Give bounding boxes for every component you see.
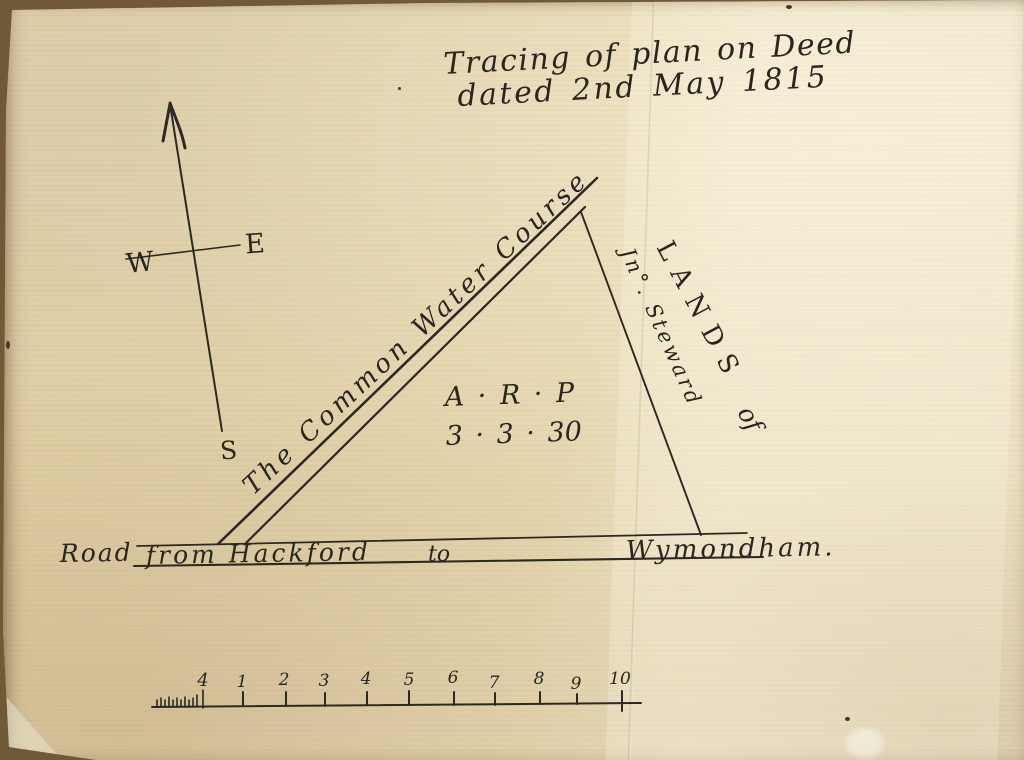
scale-tick-label: 10 (609, 669, 631, 689)
road-from-label: from Hackford (144, 537, 372, 570)
compass-needle-line (170, 104, 222, 431)
photographed-deed-plan: Tracing of plan on Deed dated 2nd May 18… (0, 0, 1024, 760)
scale-tick-label: 3 (319, 671, 330, 691)
scale-tick-label: 2 (278, 670, 290, 690)
area-values: 3 · 3 · 30 (445, 416, 582, 452)
scale-tick-label: 5 (404, 670, 415, 690)
road-name-label: Road (59, 538, 133, 568)
scale-bar-line (152, 703, 641, 707)
plan-drawing: Tracing of plan on Deed dated 2nd May 18… (0, 0, 1024, 760)
scale-bar-subdivision-ticks (157, 690, 203, 708)
road-to-label: to (428, 542, 450, 567)
scale-tick-label: 4 (360, 669, 372, 689)
compass-west-label: W (125, 246, 156, 280)
area-header: A · R · P (441, 377, 575, 413)
compass-east-label: E (244, 228, 266, 260)
scale-tick-label: 7 (489, 673, 500, 693)
scale-tick-label: 9 (571, 674, 582, 694)
road-destination-label: Wymondham. (626, 532, 836, 566)
scale-tick-label: 6 (448, 668, 459, 688)
scale-tick-label: 8 (534, 669, 545, 689)
scale-left-label: 4 (196, 670, 208, 691)
compass-south-label: S (219, 435, 238, 465)
scale-tick-label: 1 (237, 672, 248, 692)
watercourse-label: The Common Water Course (237, 165, 595, 501)
lands-of-label: of (732, 401, 771, 439)
scale-bar-major-ticks (243, 691, 622, 711)
watercourse-line-inner (246, 207, 585, 543)
